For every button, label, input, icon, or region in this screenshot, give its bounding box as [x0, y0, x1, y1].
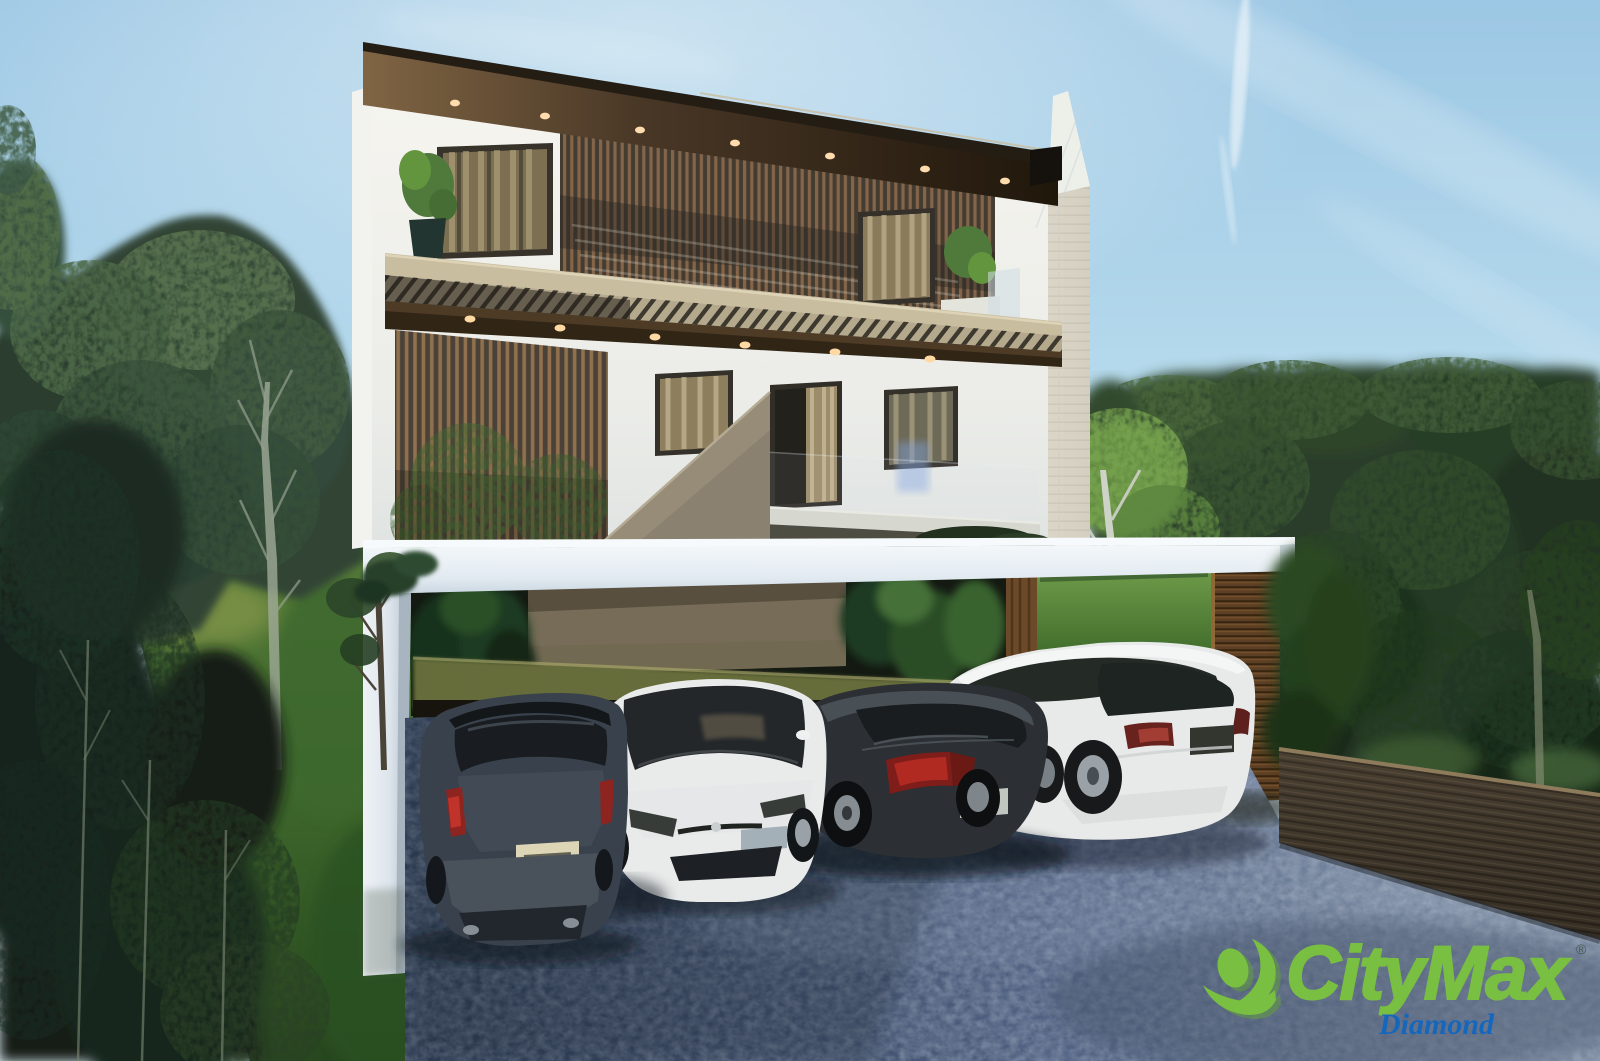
svg-text:CityMax: CityMax — [1286, 931, 1571, 1016]
svg-text:Diamond: Diamond — [1378, 1008, 1495, 1041]
svg-text:®: ® — [1576, 941, 1587, 957]
